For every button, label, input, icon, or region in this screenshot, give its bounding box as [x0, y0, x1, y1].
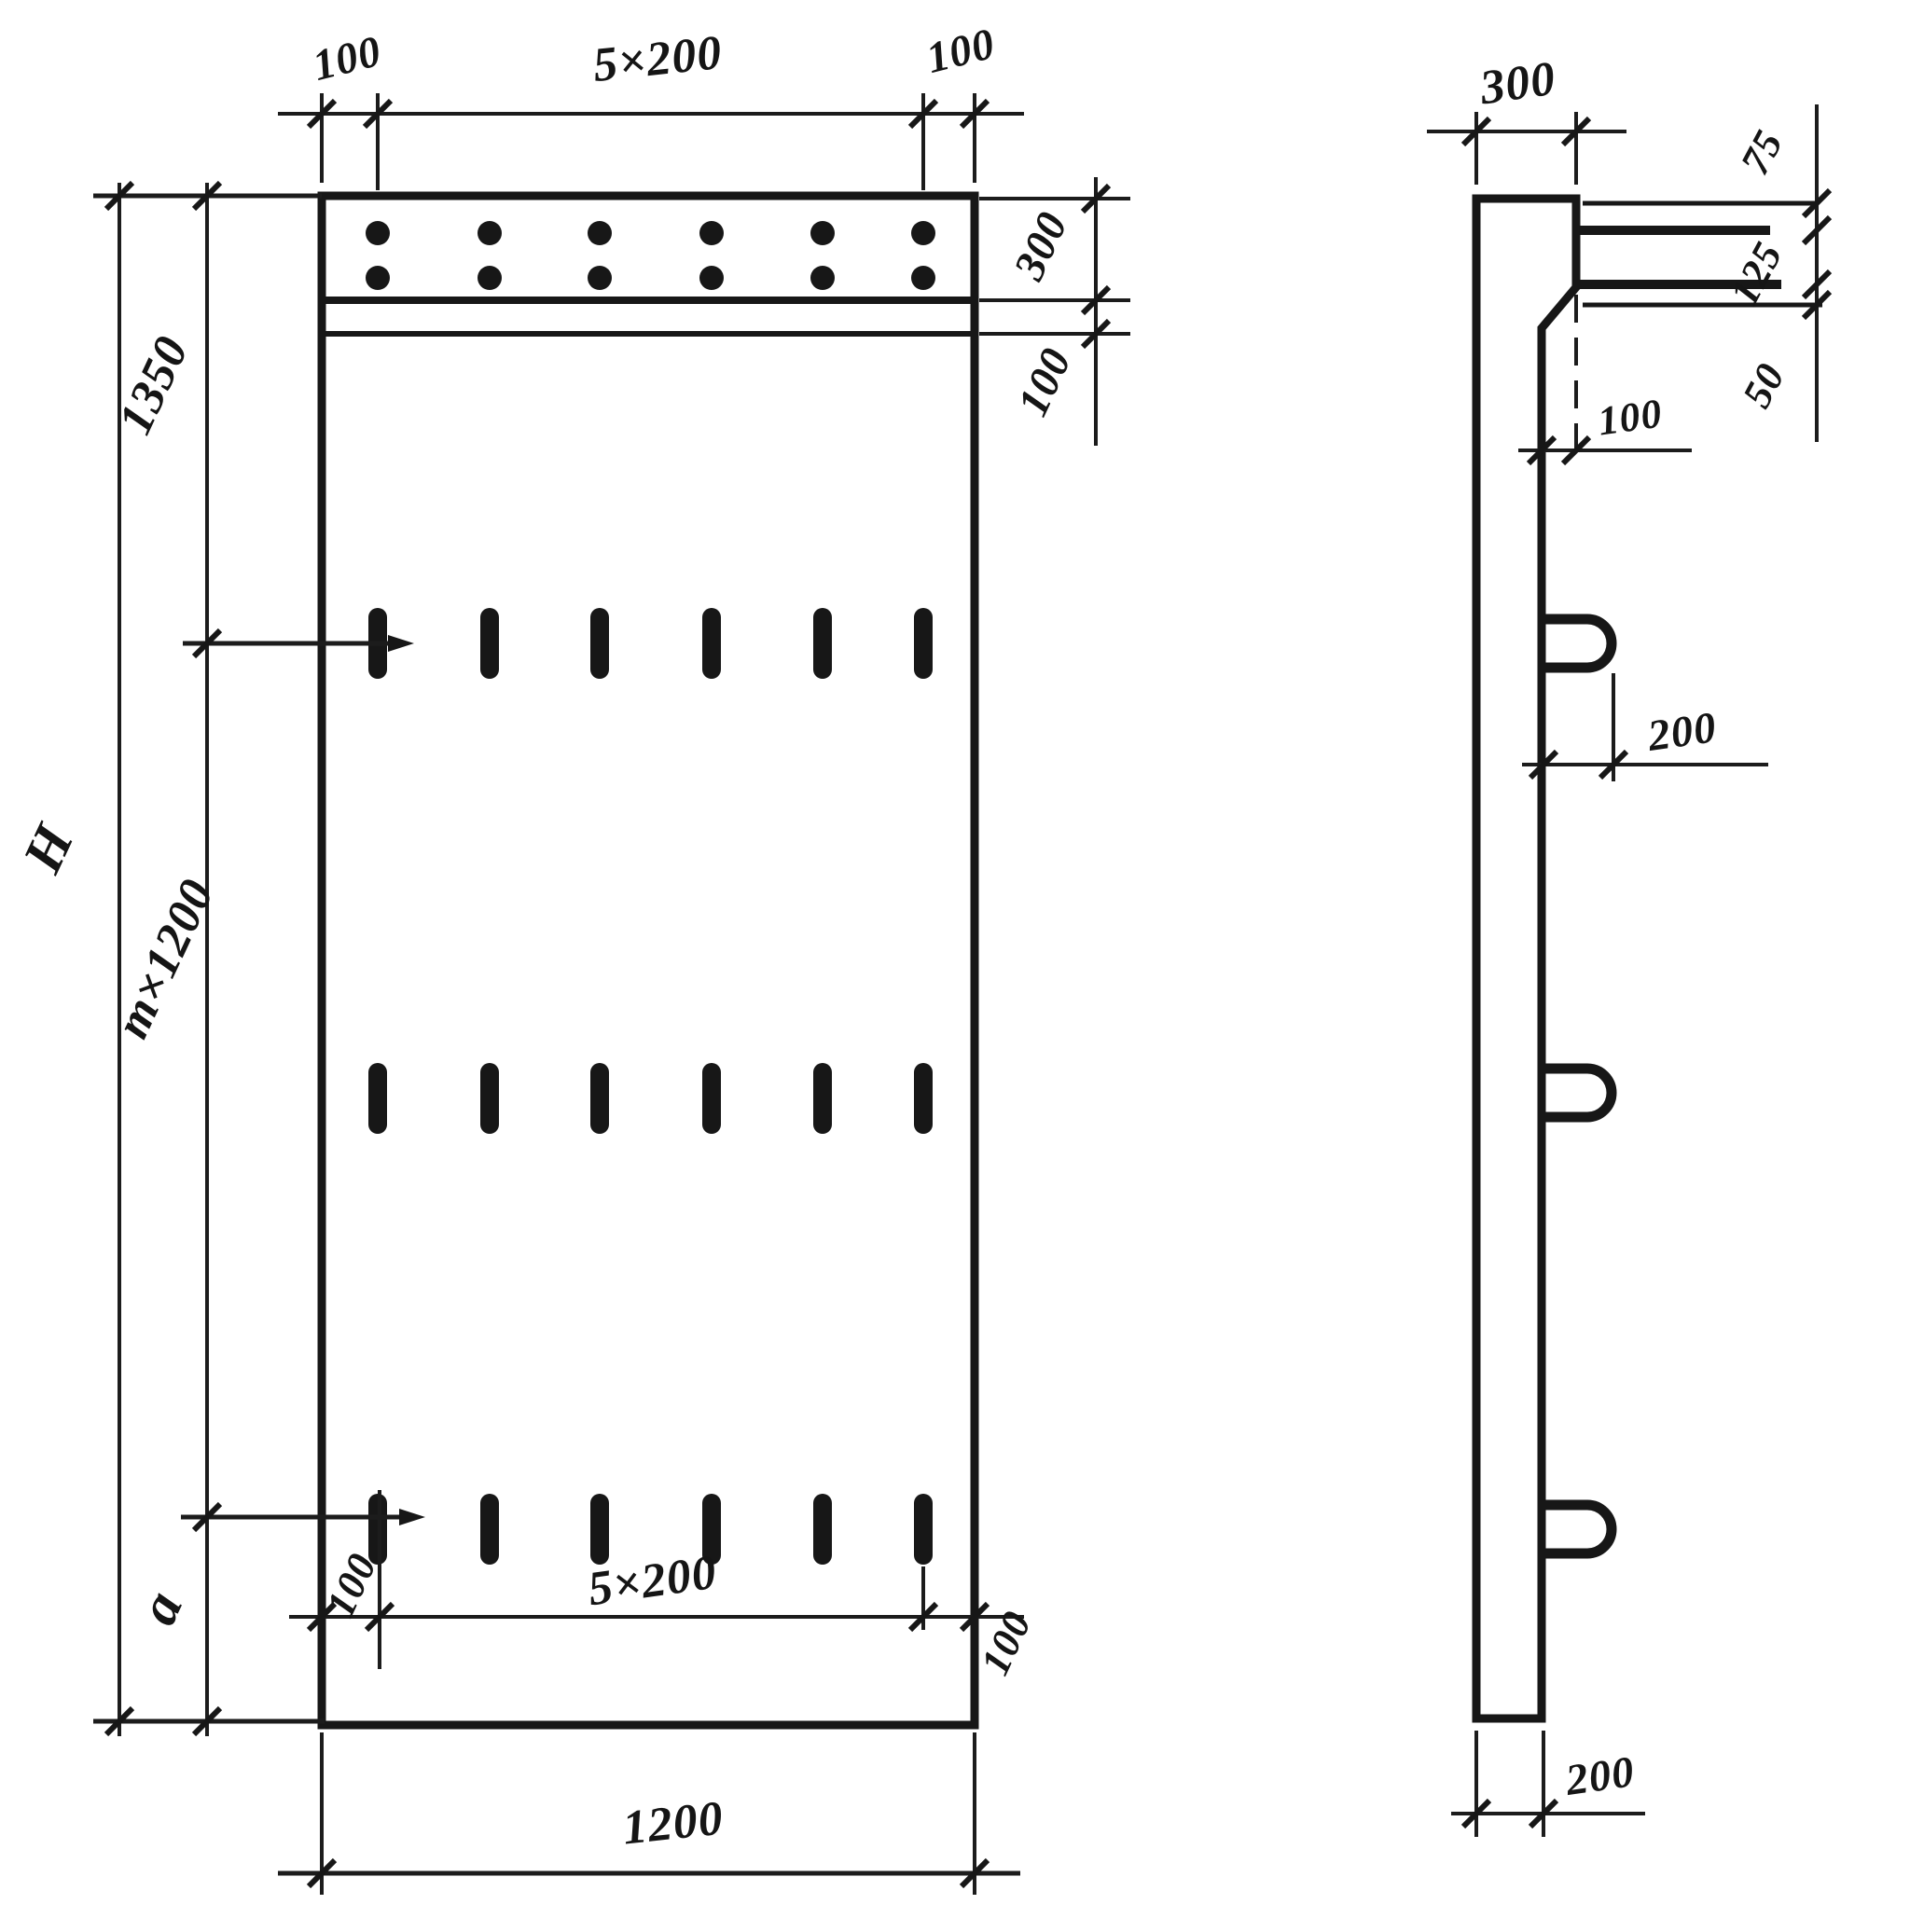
section-outline [1476, 199, 1576, 1718]
dim-label-bar-third: 50 [1734, 355, 1794, 415]
dim-label-top-spacing: 5×200 [590, 26, 725, 92]
dim-label-bar-first: 75 [1732, 122, 1792, 182]
side-view: 300 75 125 50 100 [1427, 52, 1830, 1837]
dim-label-top-left-margin: 100 [308, 27, 386, 90]
side-loop-dimension: 200 [1522, 673, 1768, 781]
dim-label-head-width: 300 [1476, 52, 1559, 116]
drawing-sheet: 100 5×200 100 300 100 [0, 0, 1910, 1932]
front-right-dimension: 300 100 [979, 177, 1130, 446]
side-bar-chain-dimension: 75 125 50 [1721, 104, 1830, 442]
anchor-dots [366, 221, 935, 290]
dim-label-bar-second: 125 [1721, 234, 1792, 312]
dim-label-overall-height: H [10, 814, 86, 882]
dim-label-left-top-segment: 1350 [108, 328, 199, 442]
front-top-dimension: 100 5×200 100 [278, 20, 1024, 190]
tie-slots [378, 617, 923, 1555]
dim-label-band-height: 300 [1004, 204, 1078, 287]
dim-label-left-bottom-segment: a [126, 1581, 194, 1634]
dim-label-band-gap: 100 [1008, 340, 1081, 423]
side-top-dimension: 300 [1427, 52, 1626, 185]
lifting-loops [1543, 619, 1612, 1553]
dim-label-ledge-offset: 100 [1595, 390, 1665, 444]
front-overall-width-dimension: 1200 [278, 1732, 1020, 1895]
side-wall-thickness-dimension: 200 [1451, 1731, 1645, 1837]
front-view: 100 5×200 100 300 100 [10, 20, 1130, 1895]
dim-label-wall-thickness: 200 [1562, 1747, 1638, 1805]
dim-label-top-right-margin: 100 [921, 20, 1000, 83]
front-left-dimension: 1350 m×1200 a H [10, 183, 425, 1736]
panel-drawing-canvas: 100 5×200 100 300 100 [0, 0, 1910, 1932]
dim-label-loop-projection: 200 [1644, 703, 1720, 761]
panel-outline [322, 196, 975, 1725]
dim-label-overall-width: 1200 [620, 1792, 726, 1856]
